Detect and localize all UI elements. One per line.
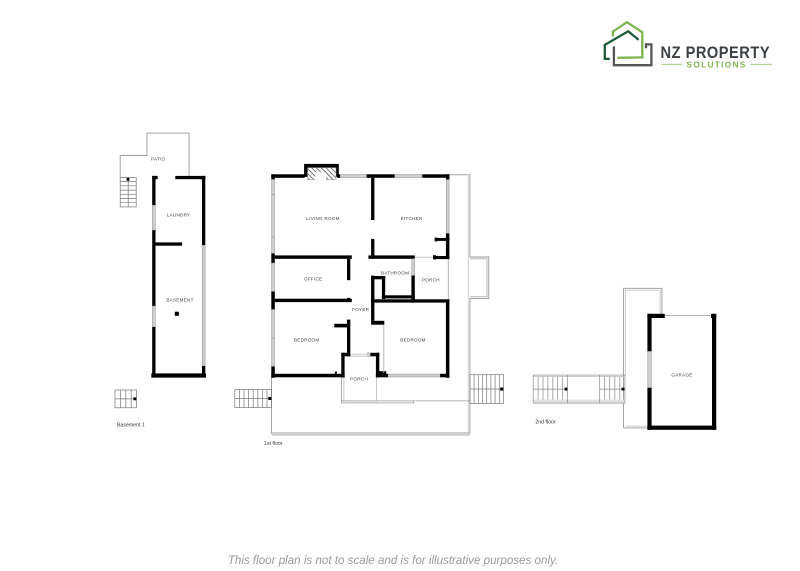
svg-text:BEDROOM: BEDROOM (400, 337, 426, 342)
svg-text:BASEMENT: BASEMENT (166, 297, 193, 302)
svg-text:1st floor: 1st floor (264, 441, 283, 447)
svg-text:2nd floor: 2nd floor (535, 419, 555, 425)
svg-text:OFFICE: OFFICE (304, 276, 322, 281)
svg-text:PORCH: PORCH (350, 377, 368, 382)
svg-text:KITCHEN: KITCHEN (401, 216, 423, 221)
svg-text:BATHROOM: BATHROOM (381, 271, 409, 276)
svg-text:SOLUTIONS: SOLUTIONS (687, 60, 747, 70)
svg-text:FOYER: FOYER (352, 307, 370, 312)
svg-text:This floor plan is not to scal: This floor plan is not to scale and is f… (228, 554, 558, 567)
svg-text:BEDROOM: BEDROOM (294, 337, 320, 342)
svg-text:GARAGE: GARAGE (671, 373, 692, 378)
svg-text:PATIO: PATIO (151, 156, 166, 161)
svg-text:PORCH: PORCH (422, 278, 440, 283)
svg-text:Basement 1: Basement 1 (117, 423, 145, 429)
svg-text:LIVING ROOM: LIVING ROOM (306, 216, 339, 221)
svg-text:LAUNDRY: LAUNDRY (167, 212, 191, 217)
